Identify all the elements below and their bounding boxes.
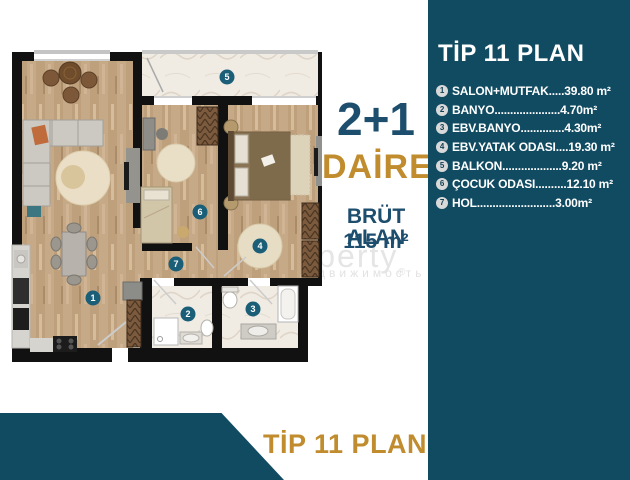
dot-leader: .............. bbox=[520, 121, 564, 135]
svg-text:6: 6 bbox=[197, 207, 202, 217]
list-bullet: 1 bbox=[436, 85, 448, 97]
badge-child-room: 6 bbox=[193, 205, 208, 220]
badge-master-bedroom: 4 bbox=[253, 239, 268, 254]
room-area: 3.00m² bbox=[555, 196, 592, 210]
list-item: 4 EBV.YATAK ODASI....19.30 m² bbox=[436, 138, 630, 157]
room-list: 1 SALON+MUTFAK.....39.80 m² 2 BANYO.....… bbox=[436, 82, 630, 212]
list-item: 1 SALON+MUTFAK.....39.80 m² bbox=[436, 82, 630, 101]
badge-hall: 7 bbox=[169, 257, 184, 272]
room-area: 4.70m² bbox=[560, 103, 597, 117]
apartment-summary: 2+1 DAİRE BRÜT ALAN 115 m² bbox=[322, 0, 430, 300]
badge-ensuite-bath: 3 bbox=[246, 302, 261, 317]
list-item: 7 HOL......................... 3.00m² bbox=[436, 194, 630, 213]
dot-leader: ..... bbox=[549, 84, 565, 98]
plan-title: TİP 11 PLAN bbox=[438, 40, 584, 68]
dot-leader: ......................... bbox=[477, 196, 555, 210]
room-label: EBV.YATAK ODASI bbox=[452, 140, 556, 154]
list-bullet: 6 bbox=[436, 178, 448, 190]
bottom-banner-shape bbox=[0, 413, 284, 480]
floor-plan: 1 2 3 4 5 6 7 bbox=[0, 28, 322, 364]
list-bullet: 3 bbox=[436, 122, 448, 134]
list-item: 5 BALKON...................9.20 m² bbox=[436, 156, 630, 175]
room-area: 4.30m² bbox=[564, 121, 601, 135]
room-label: BALKON bbox=[452, 159, 502, 173]
svg-text:7: 7 bbox=[173, 259, 178, 269]
dot-leader: .... bbox=[556, 140, 569, 154]
badge-bath: 2 bbox=[181, 307, 196, 322]
room-schedule-panel: TİP 11 PLAN 1 SALON+MUTFAK.....39.80 m² … bbox=[428, 0, 630, 480]
svg-text:2: 2 bbox=[185, 309, 190, 319]
room-label: ÇOCUK ODASI bbox=[452, 177, 535, 191]
badge-balcony: 5 bbox=[220, 70, 235, 85]
room-label: EBV.BANYO bbox=[452, 121, 520, 135]
dot-leader: ................... bbox=[502, 159, 562, 173]
gross-area-value: 115 m² bbox=[322, 231, 430, 252]
list-bullet: 7 bbox=[436, 197, 448, 209]
list-bullet: 2 bbox=[436, 104, 448, 116]
room-label: BANYO bbox=[452, 103, 494, 117]
bottom-plan-title: TİP 11 PLAN bbox=[263, 429, 427, 460]
list-item: 6 ÇOCUK ODASI..........12.10 m² bbox=[436, 175, 630, 194]
svg-text:3: 3 bbox=[250, 304, 255, 314]
room-area: 9.20 m² bbox=[562, 159, 602, 173]
dot-leader: ..................... bbox=[494, 103, 560, 117]
apartment-type-label: DAİRE bbox=[322, 150, 430, 184]
svg-text:1: 1 bbox=[90, 293, 95, 303]
svg-text:5: 5 bbox=[224, 72, 229, 82]
room-label: SALON+MUTFAK bbox=[452, 84, 549, 98]
badge-living: 1 bbox=[86, 291, 101, 306]
list-item: 2 BANYO.....................4.70m² bbox=[436, 101, 630, 120]
list-item: 3 EBV.BANYO..............4.30m² bbox=[436, 119, 630, 138]
room-area: 39.80 m² bbox=[564, 84, 610, 98]
dot-leader: .......... bbox=[535, 177, 566, 191]
apartment-type: 2+1 bbox=[322, 96, 430, 142]
room-area: 12.10 m² bbox=[566, 177, 612, 191]
list-bullet: 4 bbox=[436, 141, 448, 153]
room-area: 19.30 m² bbox=[568, 140, 614, 154]
svg-text:4: 4 bbox=[257, 241, 262, 251]
room-label: HOL bbox=[452, 196, 477, 210]
list-bullet: 5 bbox=[436, 160, 448, 172]
